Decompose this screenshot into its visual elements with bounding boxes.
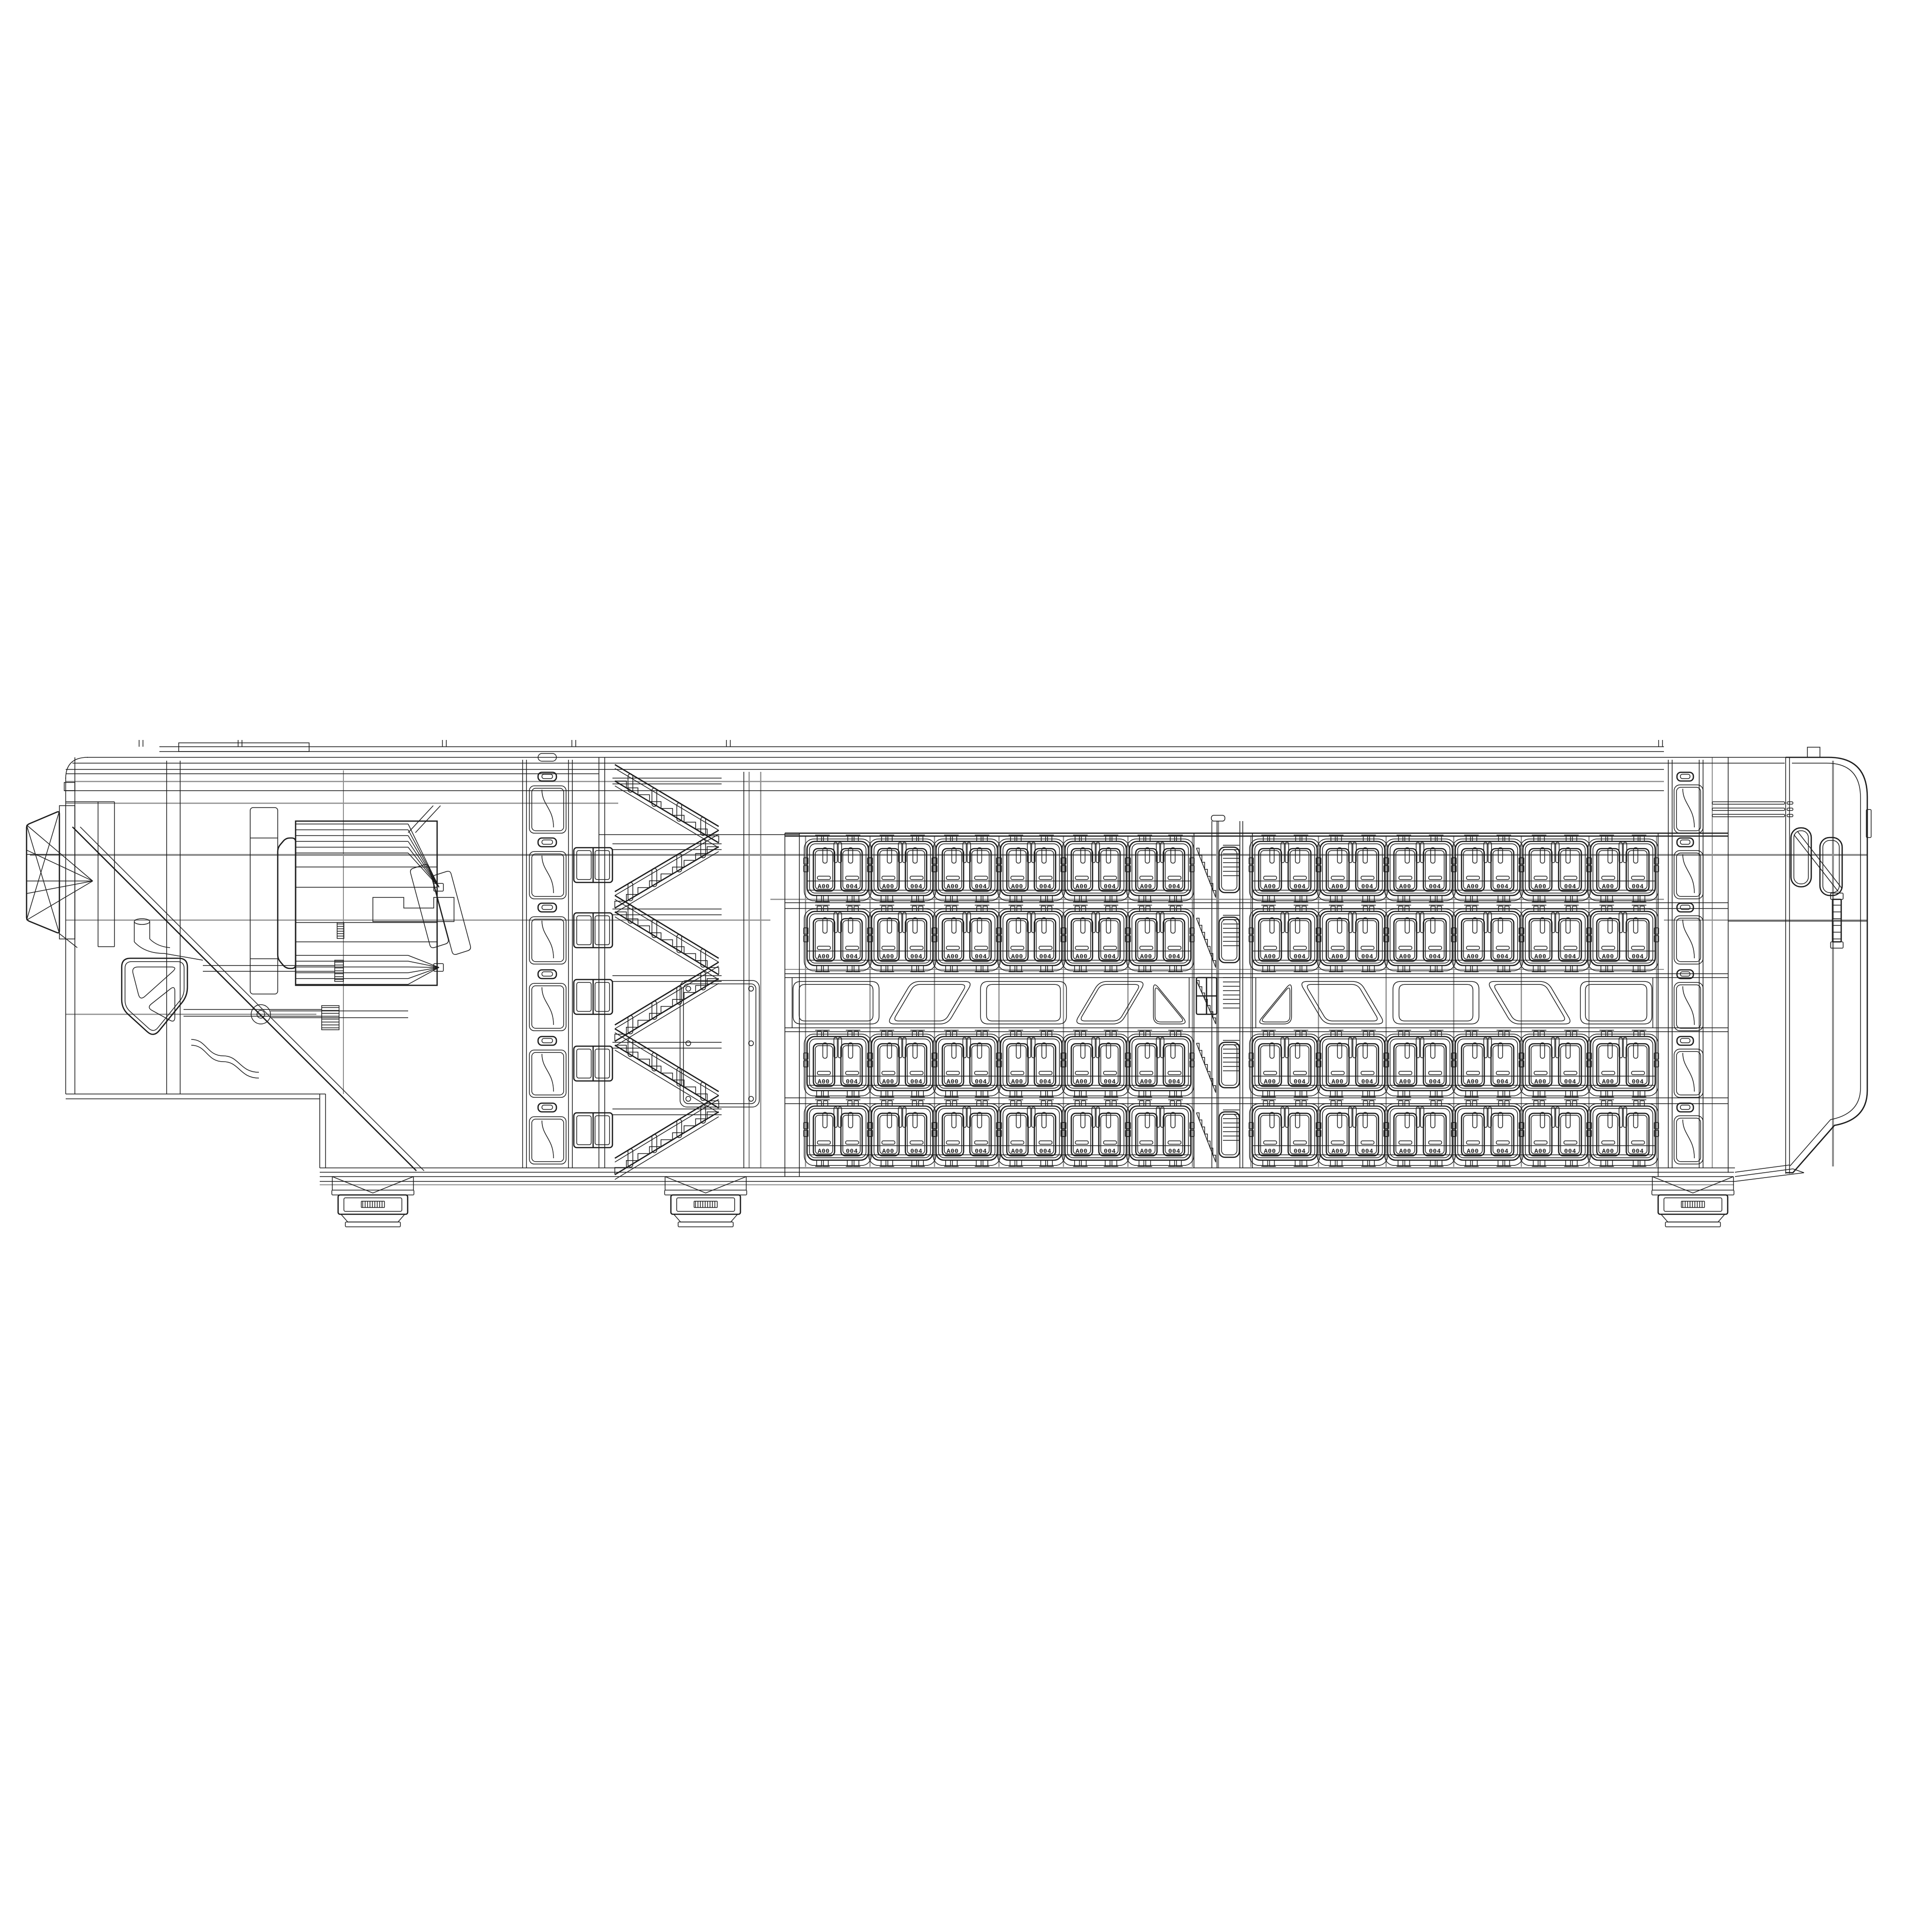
- blueprint-page: A00004A00004A00004A00004A00004A00004A000…: [0, 0, 1932, 1932]
- door-handle: [1602, 1141, 1615, 1144]
- pod-frame: [1320, 1106, 1385, 1160]
- panel-curve: [1683, 1120, 1694, 1158]
- pod-door-label: 004: [1293, 953, 1306, 960]
- pod-module: A00004: [1384, 835, 1456, 902]
- pod-frame: [1523, 841, 1588, 895]
- pod-module: A00004: [1317, 905, 1388, 972]
- pod-door-label: A00: [1399, 1148, 1411, 1155]
- line: [615, 1045, 719, 1108]
- door-handle: [1331, 946, 1344, 950]
- pod-door-label: 004: [1496, 1148, 1508, 1155]
- pod-module: A00004: [804, 835, 872, 902]
- line: [408, 961, 439, 967]
- pod-shell: [869, 909, 936, 971]
- door-handle: [1039, 946, 1052, 950]
- foot-body-inner: [344, 1198, 402, 1211]
- pod-module: A00004: [1384, 905, 1456, 972]
- door-slot: [913, 1043, 917, 1058]
- door-slot: [1107, 1043, 1111, 1058]
- door-handle: [1496, 1141, 1509, 1144]
- column-tab: [1677, 772, 1693, 781]
- pod-door-label: A00: [1264, 1078, 1276, 1085]
- pod-frame: [1320, 1037, 1385, 1091]
- pod-door-label: 004: [910, 1078, 923, 1085]
- truss-window: [1077, 981, 1143, 1024]
- pod-module: A00004: [1384, 1100, 1456, 1166]
- pod-door-label: A00: [1602, 953, 1614, 960]
- column-panel: [532, 788, 564, 831]
- support-foot: [665, 1177, 747, 1227]
- line: [80, 827, 424, 1171]
- truss-window: [1580, 981, 1652, 1024]
- door-handle: [1293, 1071, 1307, 1075]
- door-slot: [1431, 1043, 1435, 1058]
- panel-curve: [1683, 986, 1694, 1025]
- door-handle: [846, 876, 859, 880]
- column-tab-slot: [542, 905, 553, 909]
- column-panel: [1674, 916, 1703, 964]
- pod-door-label: A00: [1076, 883, 1088, 890]
- door-handle: [910, 1141, 923, 1144]
- door-slot: [1540, 1112, 1545, 1128]
- door-handle: [846, 1071, 859, 1075]
- pod-door-label: 004: [1039, 883, 1051, 890]
- panel: [683, 984, 756, 1104]
- pod-door-label: 004: [1429, 883, 1441, 890]
- pod-module: A00004: [804, 905, 872, 972]
- screw: [686, 1096, 691, 1101]
- top-rail: [139, 740, 1820, 757]
- pod-module: A00004: [868, 835, 937, 902]
- nose-cone: [27, 782, 93, 948]
- pod-module: A00004: [997, 905, 1065, 972]
- panel-curve: [1683, 854, 1694, 893]
- door-handle: [1399, 1071, 1412, 1075]
- door-handle: [1104, 876, 1117, 880]
- pod-module: A00004: [1587, 905, 1659, 972]
- pod-door-label: 004: [1496, 1078, 1508, 1085]
- door-handle: [817, 1071, 830, 1075]
- door-handle: [1011, 1071, 1024, 1075]
- pod-door-label: A00: [1467, 883, 1479, 890]
- pod-module: A00004: [1587, 1100, 1659, 1166]
- pod-door-label: A00: [1264, 953, 1276, 960]
- line: [408, 967, 439, 979]
- screw: [686, 986, 691, 991]
- column-tab-slot: [1680, 840, 1690, 844]
- column-panel: [532, 1052, 564, 1095]
- column-tab: [1677, 1103, 1693, 1112]
- pod-frame: [1591, 911, 1655, 966]
- pod-door-label: 004: [1361, 953, 1373, 960]
- pod-module: A00004: [1384, 1030, 1456, 1097]
- door-handle: [946, 876, 959, 880]
- central-mast: [1196, 815, 1243, 1168]
- pod-door-label: 004: [1168, 1148, 1180, 1155]
- pod-shell: [1452, 1034, 1523, 1096]
- panel-curve: [1683, 789, 1694, 827]
- pod-shell: [1317, 1104, 1388, 1165]
- pod-frame: [1388, 841, 1452, 895]
- door-handle: [1534, 946, 1547, 950]
- door-slot: [1042, 1043, 1046, 1058]
- pod-door-label: 004: [1039, 953, 1051, 960]
- door-handle: [1011, 876, 1024, 880]
- foot-taper: [1661, 1214, 1725, 1222]
- door-handle: [1140, 946, 1153, 950]
- door-slot: [1608, 1043, 1612, 1058]
- rect: [577, 1049, 591, 1078]
- door-slot: [1295, 918, 1300, 933]
- rect: [595, 982, 610, 1011]
- column-tab-slot: [542, 1105, 553, 1109]
- door-handle: [1168, 946, 1181, 950]
- pod-door-label: 004: [975, 1148, 987, 1155]
- pod-door-label: 004: [1039, 1148, 1051, 1155]
- foot-plate: [665, 1190, 747, 1195]
- door-slot: [849, 1112, 853, 1128]
- foot-body-inner: [1664, 1198, 1722, 1211]
- door-slot: [849, 918, 853, 933]
- panel-curve: [1683, 1053, 1694, 1092]
- door-slot: [1566, 1112, 1570, 1128]
- door-slot: [1107, 1112, 1111, 1128]
- door-slot: [1498, 1043, 1503, 1058]
- pod-door-label: 004: [1361, 1148, 1373, 1155]
- door-slot: [913, 918, 917, 933]
- truss-window-inner: [1585, 984, 1647, 1021]
- foot-hatch: [1681, 1201, 1705, 1207]
- foot-taper: [674, 1214, 738, 1222]
- column-panel: [532, 1119, 564, 1162]
- door-handle: [1429, 876, 1442, 880]
- engine-bracket: [373, 897, 454, 922]
- truss-window-inner: [1399, 984, 1473, 1021]
- door-handle: [1632, 1141, 1645, 1144]
- door-handle: [1168, 1141, 1181, 1144]
- door-handle: [1331, 1141, 1344, 1144]
- pod-shell: [1317, 839, 1388, 901]
- truss-window: [1489, 981, 1570, 1024]
- door-handle: [1264, 1141, 1277, 1144]
- door-slot: [1566, 1043, 1570, 1058]
- pod-door-label: A00: [818, 1078, 830, 1085]
- pod-module: A00004: [1126, 905, 1194, 972]
- door-handle: [1039, 1141, 1052, 1144]
- pod-shell: [1127, 1104, 1194, 1165]
- pod-frame: [1591, 1106, 1655, 1160]
- rail-block: [179, 743, 309, 752]
- vent-slot: [1787, 802, 1793, 804]
- pod-door-label: 004: [1632, 1078, 1644, 1085]
- door-handle: [910, 876, 923, 880]
- pod-door-label: 004: [1104, 1148, 1116, 1155]
- column-tab: [1677, 1037, 1693, 1045]
- pod-door-label: 004: [846, 953, 858, 960]
- pod-door-label: 004: [975, 883, 987, 890]
- column-tab: [538, 903, 556, 912]
- door-handle: [1632, 1071, 1645, 1075]
- pod-door-label: 004: [1293, 883, 1306, 890]
- pod-shell: [1062, 1034, 1129, 1096]
- vent-slot: [1787, 814, 1793, 817]
- truss-window: [980, 981, 1066, 1024]
- column-panel: [532, 919, 564, 962]
- pod-module: A00004: [1520, 1100, 1591, 1166]
- pod-module: A00004: [1126, 835, 1194, 902]
- door-handle: [1361, 1141, 1374, 1144]
- vent-slot: [1712, 808, 1785, 810]
- door-handle: [975, 1071, 988, 1075]
- door-handle-recess: [1823, 840, 1839, 893]
- pod-door-label: A00: [1399, 953, 1411, 960]
- pod-door-label: 004: [1168, 1078, 1180, 1085]
- truss-window-inner: [1495, 984, 1565, 1021]
- door-handle: [1011, 1141, 1024, 1144]
- column-panel: [532, 854, 564, 896]
- door-slot: [1042, 918, 1046, 933]
- door-handle: [882, 1141, 895, 1144]
- door-handle: [1564, 1141, 1577, 1144]
- column-panel: [529, 786, 566, 833]
- pod-door-label: A00: [1534, 1078, 1547, 1085]
- pod-door-label: 004: [1104, 883, 1116, 890]
- rect: [577, 982, 591, 1011]
- door-slot: [1270, 1043, 1274, 1058]
- door-slot: [887, 1043, 892, 1058]
- pod-door-label: 004: [975, 1078, 987, 1085]
- vent-slot: [1787, 808, 1793, 810]
- pod-door-label: A00: [1534, 883, 1547, 890]
- foot-base: [345, 1222, 400, 1227]
- door-handle: [975, 876, 988, 880]
- hull-tail: [1735, 1165, 1804, 1181]
- door-handle: [910, 946, 923, 950]
- column-panel: [529, 983, 566, 1031]
- door-handle: [946, 1141, 959, 1144]
- foot-plate: [1652, 1190, 1734, 1195]
- pod-shell: [869, 839, 936, 901]
- column-panel: [1676, 985, 1701, 1028]
- door-slot: [887, 918, 892, 933]
- pod-frame: [1252, 1037, 1317, 1091]
- pod-door-label: 004: [910, 1148, 923, 1155]
- pod-shell: [1588, 1104, 1658, 1165]
- column-panel: [1674, 982, 1703, 1031]
- pod-door-label: A00: [1140, 953, 1152, 960]
- pod-grid: A00004A00004A00004A00004A00004A00004A000…: [804, 835, 1659, 1166]
- pod-module: A00004: [933, 1030, 1001, 1097]
- pod-shell: [1452, 909, 1523, 971]
- door-handle: [1399, 946, 1412, 950]
- pod-module: A00004: [997, 1030, 1065, 1097]
- pod-door-label: 004: [1168, 883, 1180, 890]
- column-panel: [1676, 1051, 1701, 1095]
- pod-frame: [1252, 841, 1317, 895]
- pod-frame: [1455, 911, 1520, 966]
- door-handle: [1075, 1071, 1088, 1075]
- door-handle: [1564, 946, 1577, 950]
- pod-module: A00004: [1520, 905, 1591, 972]
- door-handle: [1168, 876, 1181, 880]
- column-tab: [538, 838, 556, 847]
- door-handle: [1039, 1071, 1052, 1075]
- door-handle: [817, 876, 830, 880]
- pod-door-label: 004: [1496, 883, 1508, 890]
- panel-curve: [542, 1121, 554, 1158]
- door-handle: [1104, 946, 1117, 950]
- door-handle: [1399, 1141, 1412, 1144]
- truss-window-inner: [895, 984, 965, 1021]
- pod-frame: [1523, 1037, 1588, 1091]
- door-handle: [1331, 1071, 1344, 1075]
- screw: [686, 1041, 691, 1046]
- door-handle: [1466, 876, 1479, 880]
- pod-module: A00004: [804, 1030, 872, 1097]
- pod-door-label: 004: [1632, 1148, 1644, 1155]
- pod-door-label: A00: [1264, 883, 1276, 890]
- pod-shell: [998, 1104, 1065, 1165]
- door-slot: [1634, 1112, 1638, 1128]
- pod-module: A00004: [1249, 835, 1321, 902]
- pod-frame: [1591, 1037, 1655, 1091]
- door-handle: [1466, 1141, 1479, 1144]
- pod-module: A00004: [868, 1030, 937, 1097]
- door-slot: [1634, 1043, 1638, 1058]
- door-handle: [1496, 946, 1509, 950]
- door-handle: [1602, 876, 1615, 880]
- door-handle: [1075, 1141, 1088, 1144]
- rail-column-right: [1668, 760, 1703, 1168]
- door-handle: [1466, 946, 1479, 950]
- support-feet: [332, 1177, 1734, 1227]
- pod-shell: [1385, 1104, 1455, 1165]
- pod-shell: [1520, 909, 1591, 971]
- pod-shell: [998, 1034, 1065, 1096]
- door-slot: [1634, 918, 1638, 933]
- column-panel: [529, 917, 566, 964]
- foot-base: [1665, 1222, 1720, 1227]
- pod-door-label: A00: [947, 883, 959, 890]
- pod-door-label: 004: [1564, 953, 1576, 960]
- pod-shell: [1250, 839, 1320, 901]
- door-handle: [946, 1071, 959, 1075]
- bracket-outer: [122, 958, 187, 1035]
- truss-window-inner: [1081, 984, 1138, 1021]
- nose-band: [59, 806, 75, 939]
- door-handle: [1293, 946, 1307, 950]
- panel-curve: [1683, 920, 1694, 958]
- pod-door-label: A00: [1534, 1148, 1547, 1155]
- door-handle: [1140, 1071, 1153, 1075]
- door-slot: [1363, 1043, 1367, 1058]
- door-handle-recess: [1794, 831, 1808, 884]
- pod-door-label: 004: [1564, 1148, 1576, 1155]
- door-slot: [1473, 1112, 1477, 1128]
- pod-door-label: A00: [1011, 1148, 1023, 1155]
- pod-module: A00004: [1587, 835, 1659, 902]
- line: [615, 834, 719, 895]
- pod-door-label: 004: [1632, 953, 1644, 960]
- pod-door-label: A00: [818, 883, 830, 890]
- line: [408, 967, 439, 967]
- pod-door-label: A00: [818, 1148, 830, 1155]
- pod-module: A00004: [1062, 905, 1130, 972]
- pod-door-label: A00: [1332, 953, 1344, 960]
- column-panel: [529, 1050, 566, 1097]
- rect: [577, 1116, 591, 1145]
- pod-door-label: A00: [947, 1078, 959, 1085]
- line: [1735, 1173, 1804, 1181]
- mast-cap: [1211, 815, 1225, 821]
- foot-plate: [332, 1190, 414, 1195]
- door-slot: [1016, 1043, 1021, 1058]
- pod-module: A00004: [997, 1100, 1065, 1166]
- door-slot: [952, 918, 956, 933]
- pod-shell: [1317, 909, 1388, 971]
- truss-window-inner: [1155, 988, 1182, 1022]
- door-handle: [1011, 946, 1024, 950]
- door-slot: [1107, 918, 1111, 933]
- door-handle: [946, 946, 959, 950]
- pod-shell: [933, 1034, 1000, 1096]
- pod-door-label: A00: [947, 1148, 959, 1155]
- pod-shell: [804, 909, 871, 971]
- line: [615, 912, 719, 975]
- door-slot: [823, 1043, 827, 1058]
- truss-window-inner: [986, 984, 1060, 1021]
- pod-shell: [1127, 909, 1194, 971]
- pod-module: A00004: [1520, 835, 1591, 902]
- pod-shell: [1385, 839, 1455, 901]
- door-slot: [913, 1112, 917, 1128]
- door-handle: [1104, 1141, 1117, 1144]
- pod-shell: [1127, 1034, 1194, 1096]
- mast-door: [1222, 1045, 1237, 1085]
- line: [615, 1112, 719, 1175]
- pod-module: A00004: [1249, 1100, 1321, 1166]
- pod-module: A00004: [1452, 905, 1523, 972]
- pod-shell: [804, 1104, 871, 1165]
- line: [615, 979, 719, 1041]
- pod-door-label: 004: [1361, 883, 1373, 890]
- door-handle: [1496, 1071, 1509, 1075]
- line: [408, 836, 439, 887]
- door-handle: [1534, 1071, 1547, 1075]
- line: [615, 781, 719, 843]
- pod-frame: [1523, 1106, 1588, 1160]
- pod-door-label: A00: [882, 883, 894, 890]
- pod-module: A00004: [1317, 1100, 1388, 1166]
- pod-door-label: 004: [1293, 1148, 1306, 1155]
- door-handle: [1429, 1141, 1442, 1144]
- door-slot: [1608, 1112, 1612, 1128]
- column-panel: [529, 852, 566, 899]
- door-handle: [1293, 876, 1307, 880]
- pod-shell: [869, 1034, 936, 1096]
- pod-frame: [1455, 841, 1520, 895]
- door-slot: [849, 1043, 853, 1058]
- pod-door-label: 004: [1429, 1078, 1441, 1085]
- column-panel: [1676, 918, 1701, 962]
- door-handle: [975, 1141, 988, 1144]
- door-slot: [1337, 1043, 1342, 1058]
- truss-window-inner: [1262, 988, 1290, 1022]
- door-slot: [1171, 918, 1175, 933]
- foot-base: [678, 1222, 733, 1227]
- pod-frame: [1388, 911, 1452, 966]
- path: [134, 942, 203, 960]
